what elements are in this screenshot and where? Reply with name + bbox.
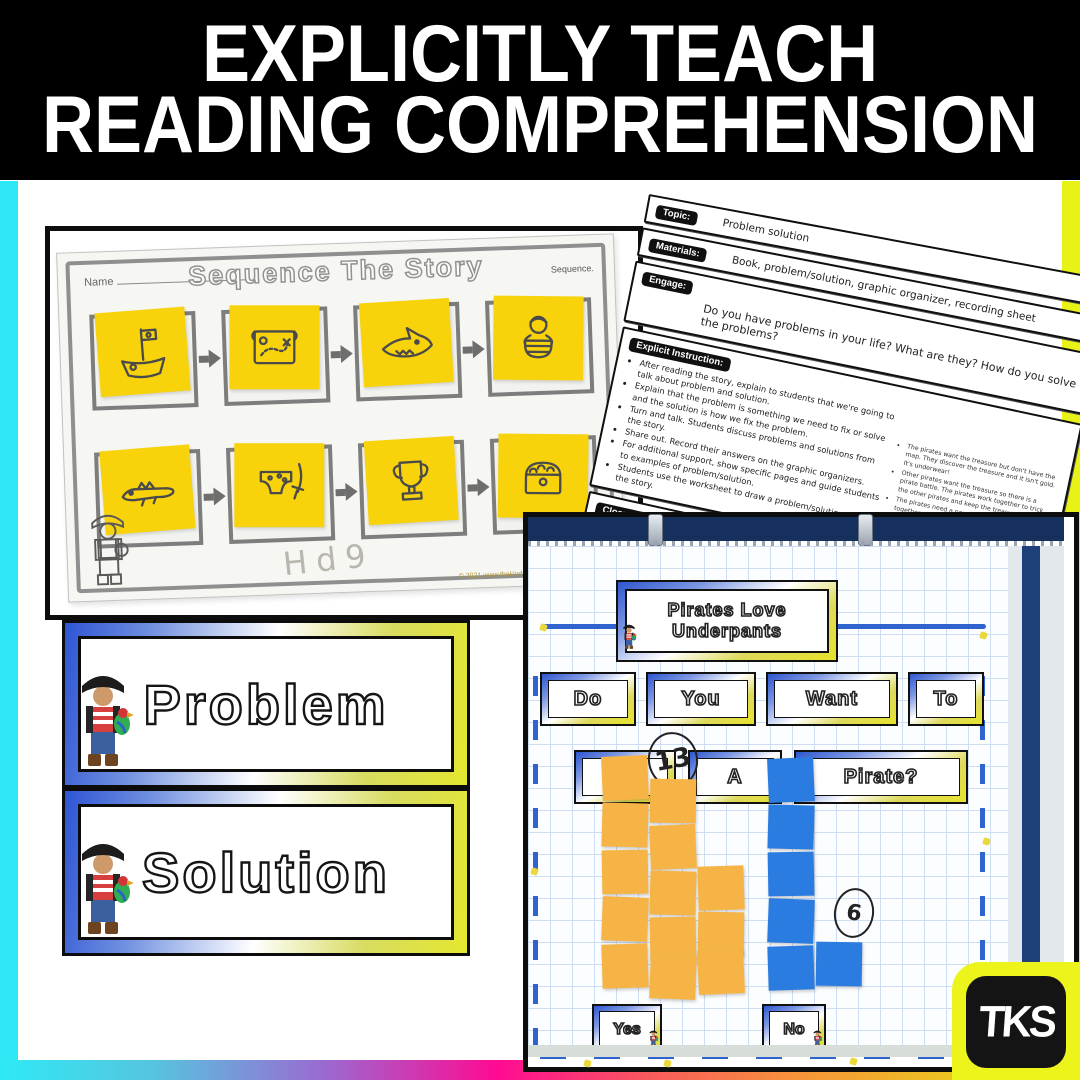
- chart-title-line2: Underpants: [672, 621, 782, 642]
- yellow-dot: [663, 1059, 672, 1068]
- arrow-icon: [197, 349, 224, 368]
- problem-vocabulary-card: Problem: [62, 620, 470, 788]
- arrow-icon: [328, 344, 355, 363]
- sticky-note-no: [767, 898, 815, 944]
- solution-card-inner: Solution: [78, 804, 454, 940]
- sequence-card-trophy: [358, 440, 467, 540]
- sticky-note-yes: [697, 865, 744, 910]
- pirate-clipart-icon: [73, 662, 133, 779]
- question-word: To: [934, 688, 959, 711]
- yellow-dot: [849, 1057, 858, 1066]
- lesson-section-label: Materials:: [648, 238, 708, 263]
- yellow-sticky-note: [364, 436, 459, 525]
- question-word: A: [727, 766, 742, 789]
- question-word: Want: [806, 688, 858, 711]
- sticky-note-yes: [601, 896, 649, 942]
- pirate-clipart-lineart-icon: [84, 503, 133, 596]
- question-word: You: [681, 688, 720, 711]
- arrow-icon: [465, 478, 492, 497]
- question-word-inner: A: [696, 758, 774, 796]
- yellow-dot: [583, 1059, 592, 1068]
- question-word-inner: You: [654, 680, 748, 718]
- question-word: Pirate?: [844, 766, 919, 789]
- problem-card-label: Problem: [143, 672, 388, 737]
- pirate-clipart-icon: [73, 830, 133, 947]
- student-handwriting: Hd9: [281, 536, 376, 583]
- sticky-note-no: [768, 852, 815, 897]
- yes-label: Yes: [613, 1021, 641, 1039]
- sequence-card-treasure-map: [221, 306, 330, 406]
- yellow-sticky-note: [229, 305, 319, 389]
- arrow-icon: [460, 340, 487, 359]
- question-word-card-want: Want: [766, 672, 898, 726]
- problem-card-inner: Problem: [78, 636, 454, 772]
- question-word-card-pirate: Pirate?: [794, 750, 968, 804]
- banner-title-line2: READING COMPREHENSION: [42, 86, 1038, 165]
- sticky-note-yes: [649, 954, 697, 1000]
- worksheet-corner-label: Sequence.: [551, 263, 594, 274]
- floor-strip: [528, 1045, 1008, 1057]
- yellow-dot: [979, 631, 988, 640]
- solution-card-label: Solution: [142, 840, 390, 905]
- arrow-icon: [201, 487, 228, 506]
- question-word-card-do: Do: [540, 672, 636, 726]
- sticky-note-yes: [649, 824, 697, 870]
- yellow-sticky-note: [234, 443, 324, 527]
- question-word-card-you: You: [646, 672, 756, 726]
- sticky-note-yes: [649, 870, 696, 915]
- flipchart-binding: [528, 517, 1064, 541]
- question-word-inner: Do: [548, 680, 628, 718]
- yellow-sticky-note: [359, 298, 454, 387]
- chart-title-line1: Pirates Love: [667, 600, 786, 621]
- yes-card-inner: Yes: [599, 1011, 655, 1049]
- hand-drawn-dashes-left: [533, 676, 538, 1056]
- no-label: No: [783, 1021, 804, 1039]
- chart-title-inner: Pirates Love Underpants: [625, 589, 829, 653]
- border-left-cyan: [0, 181, 18, 1080]
- sequence-card-pirate-ship: [89, 311, 198, 411]
- sequence-card-pirate-in-boat: [485, 297, 594, 397]
- sticky-note-yes: [697, 949, 745, 995]
- poster-canvas: EXPLICITLY TEACH READING COMPREHENSION N…: [0, 0, 1080, 1080]
- sticky-note-yes: [601, 943, 648, 988]
- question-word: Do: [574, 688, 603, 711]
- yellow-sticky-note: [94, 306, 190, 397]
- yellow-sticky-note: [493, 296, 584, 381]
- lesson-section-text: Problem solution: [722, 217, 811, 245]
- sticky-note-no: [816, 942, 863, 987]
- lesson-section-label: Engage:: [641, 271, 694, 295]
- tks-logo-text: TKS: [977, 997, 1056, 1047]
- question-word-inner: To: [916, 680, 976, 718]
- sequence-card-shark: [353, 302, 462, 402]
- chart-title-card: Pirates Love Underpants: [616, 580, 838, 662]
- sticky-note-no: [767, 804, 814, 849]
- tks-logo: TKS: [966, 976, 1066, 1068]
- sticky-note-yes: [650, 779, 697, 824]
- banner: EXPLICITLY TEACH READING COMPREHENSION: [0, 0, 1080, 180]
- sticky-note-yes: [601, 755, 649, 801]
- sequence-row-1: [89, 297, 594, 410]
- question-word-inner: Pirate?: [802, 758, 960, 796]
- yellow-dot: [539, 623, 548, 632]
- question-word-inner: Want: [774, 680, 890, 718]
- sticky-note-yes: [602, 850, 649, 895]
- sticky-note-no: [767, 945, 814, 990]
- question-word-card-to: To: [908, 672, 984, 726]
- arrow-icon: [333, 482, 360, 501]
- grid-chart-paper: Pirates Love Underpants DoYouWantToBeAPi…: [528, 546, 1008, 1057]
- yellow-sticky-note: [498, 434, 589, 519]
- sticky-note-yes: [601, 802, 648, 847]
- pirate-clipart-icon: [621, 621, 637, 656]
- solution-vocabulary-card: Solution: [62, 788, 470, 956]
- no-count-circled: 6: [831, 885, 878, 940]
- worksheet-title: Sequence The Story: [58, 246, 615, 296]
- sticky-note-no: [767, 757, 815, 803]
- sequence-card-underpants-sword: [226, 444, 335, 544]
- lesson-section-label: Topic:: [655, 205, 699, 226]
